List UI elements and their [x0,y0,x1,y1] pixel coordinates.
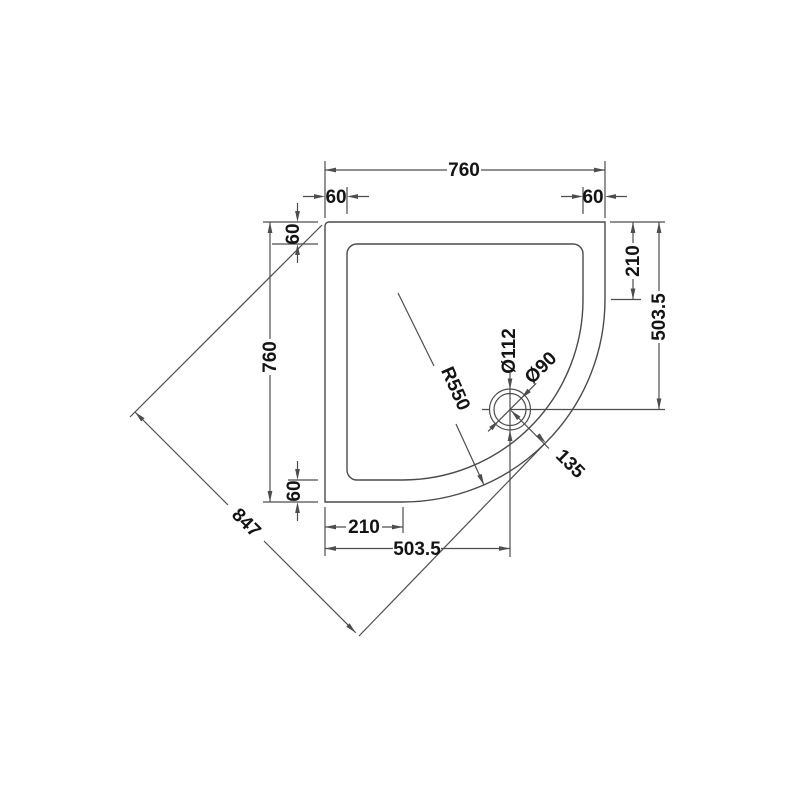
label-bottom-edge: 210 [348,517,380,538]
dimension-lines [135,170,659,633]
label-top-rim-right: 60 [582,187,603,208]
label-left-height: 760 [260,341,281,373]
diagonal-extension-top-left [130,225,322,417]
label-drain-offset: 135 [551,445,589,483]
diagonal-extension-bottom-right [359,443,546,636]
technical-drawing-canvas: 760 60 60 60 760 60 210 503.5 210 503.5 … [0,0,800,800]
label-top-width: 760 [448,160,480,181]
label-left-rim-top: 60 [283,223,304,244]
arrowheads [135,168,661,633]
label-right-drain: 503.5 [649,293,670,341]
label-waste-outer: Ø112 [499,328,520,373]
label-diagonal: 847 [227,504,264,541]
leader-r550 [398,293,484,485]
label-bottom-drain: 503.5 [393,539,441,560]
label-radius: R550 [436,364,474,414]
dimension-labels: 760 60 60 60 760 60 210 503.5 210 503.5 … [227,160,670,560]
label-waste-inner: Ø90 [521,348,561,388]
label-left-rim-bottom: 60 [284,480,305,501]
label-top-rim-left: 60 [325,187,346,208]
label-right-edge: 210 [623,245,644,277]
extension-lines [130,161,665,636]
shower-tray-drawing: 760 60 60 60 760 60 210 503.5 210 503.5 … [0,0,800,800]
